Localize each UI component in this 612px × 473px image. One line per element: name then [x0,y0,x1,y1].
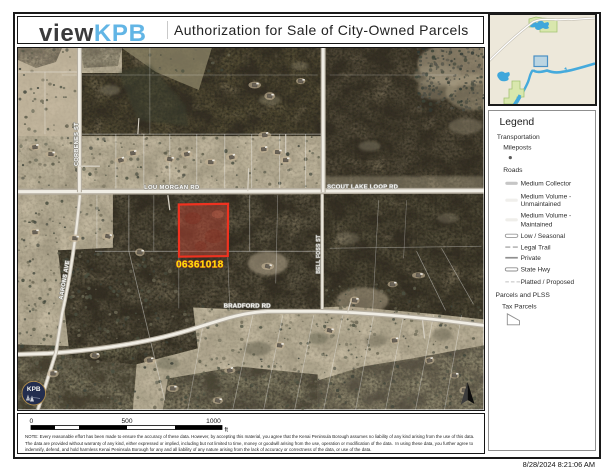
svg-text:CORBENES ST: CORBENES ST [74,122,80,166]
svg-text:Low / Seasonal: Low / Seasonal [521,233,566,240]
svg-text:Medium Volume -: Medium Volume - [521,194,572,201]
svg-text:Medium Collector: Medium Collector [521,181,572,188]
svg-text:Legend: Legend [500,117,535,128]
svg-text:Roads: Roads [503,167,523,174]
svg-text:LOU MORGAN RD: LOU MORGAN RD [144,185,200,191]
svg-text:1000: 1000 [206,418,221,425]
svg-text:Parcels and PLSS: Parcels and PLSS [496,292,551,299]
svg-text:Legal Trail: Legal Trail [521,244,552,251]
svg-text:500: 500 [121,418,132,425]
svg-text:Unmaintained: Unmaintained [521,201,561,208]
svg-text:BELL FOSS ST: BELL FOSS ST [316,235,322,274]
svg-text:06361018: 06361018 [176,259,224,270]
svg-text:Transportation: Transportation [497,134,540,141]
svg-text:SCOUT LAKE LOOP RD: SCOUT LAKE LOOP RD [327,185,398,191]
svg-text:State Hwy: State Hwy [521,267,551,274]
svg-text:0: 0 [30,418,34,425]
svg-text:BRADFORD RD: BRADFORD RD [224,303,271,309]
svg-text:Mileposts: Mileposts [503,145,532,152]
svg-text:Platted / Proposed: Platted / Proposed [521,279,575,286]
svg-text:Tax Parcels: Tax Parcels [502,303,537,310]
svg-text:Maintained: Maintained [521,222,553,229]
svg-text:Private: Private [521,255,542,262]
svg-text:KPB: KPB [27,386,41,393]
svg-text:ft: ft [225,427,229,434]
svg-text:Medium Volume -: Medium Volume - [521,213,572,220]
